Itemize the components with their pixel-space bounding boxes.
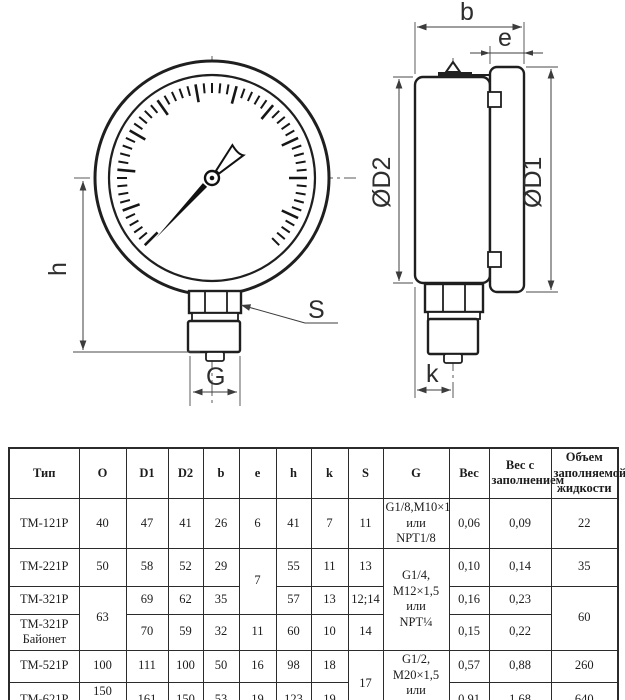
table-cell: 0,09 xyxy=(489,498,551,548)
table-row: ТМ-521Р1001111005016981817G1/2, М20×1,5 … xyxy=(9,650,618,682)
table-cell: 0,16 xyxy=(449,586,489,614)
dim-label-d2: ØD2 xyxy=(368,157,396,208)
table-cell: 59 xyxy=(168,614,203,650)
table-cell: 57 xyxy=(276,586,311,614)
table-cell: 17 xyxy=(348,650,383,700)
table-cell: 19 xyxy=(239,682,276,700)
table-cell: 58 xyxy=(126,548,168,586)
dim-label-g: G xyxy=(206,363,225,391)
table-cell: 60 xyxy=(276,614,311,650)
table-cell: 7 xyxy=(239,548,276,614)
front-view: h G S xyxy=(44,56,356,406)
table-cell: 0,06 xyxy=(449,498,489,548)
dimensions-table: ТипOD1D2behkSGВесВес с заполнениемОбъем … xyxy=(8,447,619,700)
pressure-gauge-datasheet: h G S xyxy=(0,0,625,700)
column-header: O xyxy=(79,448,126,498)
table-cell: 19 xyxy=(311,682,348,700)
table-cell: 6 xyxy=(239,498,276,548)
table-cell: G1/8,М10×1 или NPT1/8 xyxy=(383,498,449,548)
table-cell: 11 xyxy=(239,614,276,650)
dim-label-s: S xyxy=(308,296,325,324)
technical-drawing: h G S xyxy=(0,0,625,445)
column-header: S xyxy=(348,448,383,498)
table-row: ТМ-221Р505852297551113G1/4, М12×1,5 или … xyxy=(9,548,618,586)
table-cell: 70 xyxy=(126,614,168,650)
table-cell: ТМ-321Р Байонет xyxy=(9,614,79,650)
table-cell: 123 xyxy=(276,682,311,700)
table-cell: ТМ-621Р xyxy=(9,682,79,700)
table-cell: 40 xyxy=(79,498,126,548)
table-cell: 10 xyxy=(311,614,348,650)
table-cell: 55 xyxy=(276,548,311,586)
side-view: b e ØD2 ØD1 k xyxy=(368,0,558,400)
dim-label-h: h xyxy=(44,262,72,276)
column-header: b xyxy=(203,448,239,498)
column-header: G xyxy=(383,448,449,498)
table-header-row: ТипOD1D2behkSGВесВес с заполнениемОбъем … xyxy=(9,448,618,498)
needle-hub-dot xyxy=(210,176,215,181)
table-row: ТМ-621Р150 /160*1611505319123190,911,686… xyxy=(9,682,618,700)
spec-table-section: ТипOD1D2behkSGВесВес с заполнениемОбъем … xyxy=(8,447,617,700)
table-cell: 0,57 xyxy=(449,650,489,682)
table-cell: ТМ-321Р xyxy=(9,586,79,614)
table-cell: 111 xyxy=(126,650,168,682)
table-row: ТМ-121Р40474126641711G1/8,М10×1 или NPT1… xyxy=(9,498,618,548)
table-cell: 69 xyxy=(126,586,168,614)
table-cell: 640 xyxy=(551,682,618,700)
table-cell: 29 xyxy=(203,548,239,586)
table-cell: 60 xyxy=(551,586,618,650)
table-cell: 100 xyxy=(79,650,126,682)
table-cell: 161 xyxy=(126,682,168,700)
filler-valve-triangle xyxy=(446,62,460,72)
column-header: Объем заполняемой жидкости xyxy=(551,448,618,498)
table-cell: G1/2, М20×1,5 или NPT½ xyxy=(383,650,449,700)
table-cell: 0,88 xyxy=(489,650,551,682)
table-cell: 150 /160* xyxy=(79,682,126,700)
table-cell: 0,10 xyxy=(449,548,489,586)
table-cell: 0,15 xyxy=(449,614,489,650)
table-cell: 13 xyxy=(311,586,348,614)
side-nipple xyxy=(444,354,462,363)
table-cell: 32 xyxy=(203,614,239,650)
e-arrow xyxy=(481,50,490,56)
table-cell: 62 xyxy=(168,586,203,614)
table-cell: 35 xyxy=(203,586,239,614)
column-header: Вес с заполнением xyxy=(489,448,551,498)
bezel-clip xyxy=(488,92,501,107)
table-cell: 0,14 xyxy=(489,548,551,586)
table-cell: 63 xyxy=(79,586,126,650)
table-cell: 22 xyxy=(551,498,618,548)
dim-label-k: k xyxy=(426,360,439,388)
table-cell: 98 xyxy=(276,650,311,682)
table-cell: 100 xyxy=(168,650,203,682)
s-leader-line xyxy=(241,305,305,323)
bezel-clip xyxy=(488,252,501,267)
table-cell: G1/4, М12×1,5 или NPT¼ xyxy=(383,548,449,650)
table-cell: ТМ-121Р xyxy=(9,498,79,548)
dim-label-b: b xyxy=(460,0,474,26)
table-cell: 260 xyxy=(551,650,618,682)
side-thread-block xyxy=(428,319,478,354)
table-cell: 7 xyxy=(311,498,348,548)
side-hex-nut xyxy=(425,284,483,312)
column-header: Вес xyxy=(449,448,489,498)
table-cell: 0,23 xyxy=(489,586,551,614)
dim-label-e: e xyxy=(498,24,512,52)
table-cell: 16 xyxy=(239,650,276,682)
table-cell: 52 xyxy=(168,548,203,586)
side-case-body xyxy=(415,77,490,283)
table-cell: 11 xyxy=(311,548,348,586)
table-cell: 18 xyxy=(311,650,348,682)
table-cell: 53 xyxy=(203,682,239,700)
column-header: D2 xyxy=(168,448,203,498)
table-cell: 35 xyxy=(551,548,618,586)
front-hex-nut xyxy=(189,291,241,313)
table-cell: 50 xyxy=(203,650,239,682)
table-cell: 0,91 xyxy=(449,682,489,700)
table-cell: 41 xyxy=(168,498,203,548)
table-cell: 14 xyxy=(348,614,383,650)
table-cell: 50 xyxy=(79,548,126,586)
table-cell: 12;14 xyxy=(348,586,383,614)
table-cell: ТМ-221Р xyxy=(9,548,79,586)
table-cell: 11 xyxy=(348,498,383,548)
column-header: e xyxy=(239,448,276,498)
column-header: D1 xyxy=(126,448,168,498)
front-nipple xyxy=(206,352,224,361)
column-header: Тип xyxy=(9,448,79,498)
table-cell: 1,68 xyxy=(489,682,551,700)
table-cell: 47 xyxy=(126,498,168,548)
column-header: k xyxy=(311,448,348,498)
table-cell: ТМ-521Р xyxy=(9,650,79,682)
dim-label-d1: ØD1 xyxy=(519,157,547,208)
table-cell: 13 xyxy=(348,548,383,586)
table-row: ТМ-321Р63696235571312;140,160,2360 xyxy=(9,586,618,614)
table-cell: 0,22 xyxy=(489,614,551,650)
table-cell: 150 xyxy=(168,682,203,700)
table-cell: 41 xyxy=(276,498,311,548)
e-arrow xyxy=(524,50,533,56)
front-thread-block xyxy=(188,321,240,352)
column-header: h xyxy=(276,448,311,498)
table-cell: 26 xyxy=(203,498,239,548)
